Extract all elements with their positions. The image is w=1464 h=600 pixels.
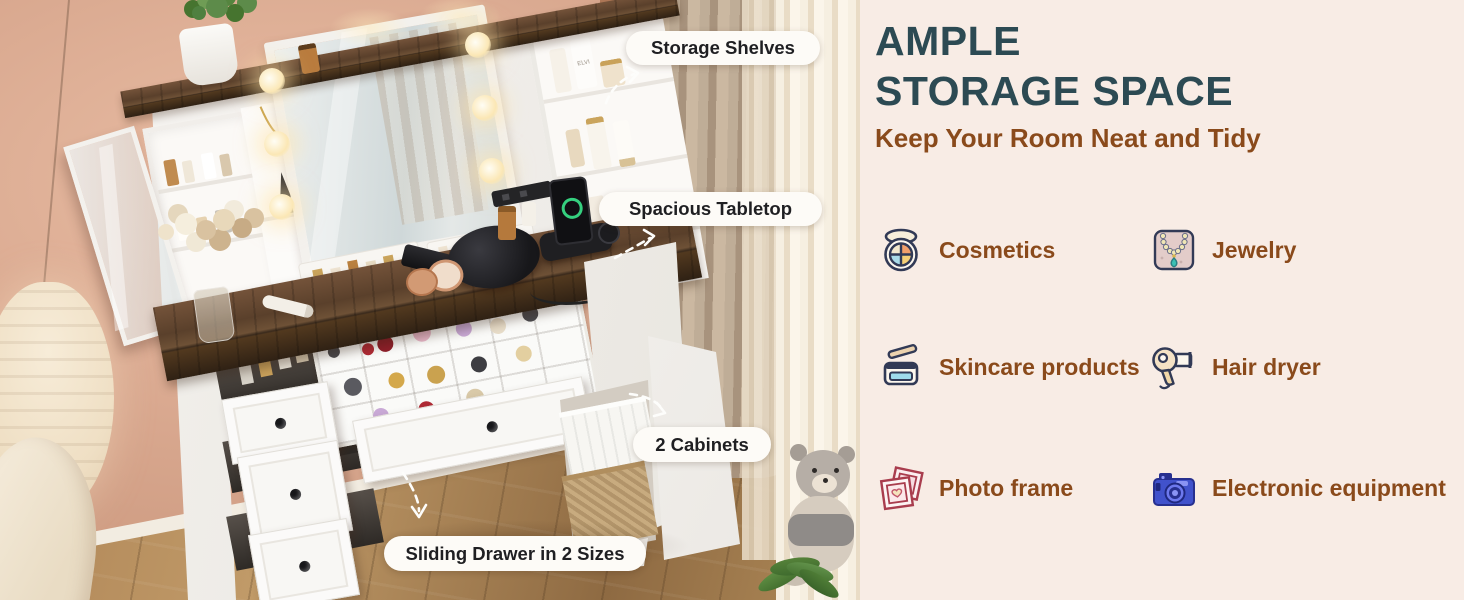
jewelry-icon — [1150, 226, 1198, 274]
feature-skincare: Skincare products — [877, 341, 1140, 393]
heading: AMPLE STORAGE SPACE — [875, 16, 1233, 116]
arrow-to-storage-shelves — [606, 67, 638, 103]
arrow-to-two-cabinets — [630, 394, 665, 416]
feature-electronics: Electronic equipment — [1150, 462, 1446, 514]
skincare-icon — [877, 343, 925, 391]
feature-label: Cosmetics — [939, 237, 1055, 264]
cosmetics-icon — [877, 226, 925, 274]
feature-photo-frame: Photo frame — [877, 462, 1073, 514]
feature-label: Hair dryer — [1212, 354, 1321, 381]
arrow-to-spacious-tabletop — [615, 230, 654, 258]
feature-cosmetics: Cosmetics — [877, 224, 1055, 276]
feature-label: Jewelry — [1212, 237, 1296, 264]
product-infographic: ELVI — [0, 0, 1464, 600]
camera-icon — [1150, 464, 1198, 512]
product-photo: ELVI — [0, 0, 860, 600]
feature-hair-dryer: Hair dryer — [1150, 341, 1321, 393]
heading-line-1: AMPLE — [875, 16, 1233, 66]
feature-label: Electronic equipment — [1212, 475, 1446, 502]
photo-frame-icon — [877, 464, 925, 512]
callout-arrows — [0, 0, 860, 600]
arrow-to-sliding-drawer — [403, 473, 426, 517]
feature-label: Photo frame — [939, 475, 1073, 502]
feature-jewelry: Jewelry — [1150, 224, 1296, 276]
hair-dryer-icon — [1150, 343, 1198, 391]
feature-label: Skincare products — [939, 354, 1140, 381]
heading-line-2: STORAGE SPACE — [875, 66, 1233, 116]
subheading: Keep Your Room Neat and Tidy — [875, 123, 1261, 154]
info-panel: AMPLE STORAGE SPACE Keep Your Room Neat … — [860, 0, 1464, 600]
